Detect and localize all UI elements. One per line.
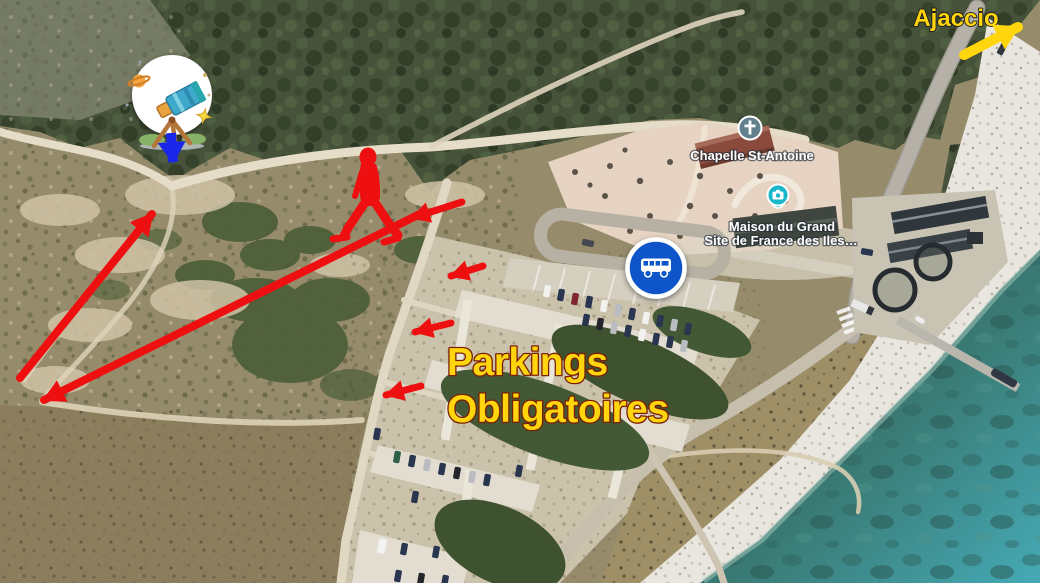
aerial-photo: Chapelle St-Antoine Maison du Grand Site… — [0, 0, 1040, 583]
parking-label-line1: Parkings — [447, 341, 608, 384]
maison-label-line2: Site de France des Iles… — [704, 233, 857, 248]
chapel-label: Chapelle St-Antoine — [690, 148, 814, 163]
aquaculture-tank — [916, 245, 950, 279]
parking-label-line2: Obligatoires — [447, 388, 669, 431]
viewpoint-down-arrow — [171, 133, 173, 162]
aquaculture-tank — [875, 270, 915, 310]
bus-sign-icon — [628, 240, 685, 297]
cross-icon — [749, 121, 752, 135]
maison-label-line1: Maison du Grand — [729, 219, 835, 234]
ajaccio-label: Ajaccio — [913, 5, 998, 32]
annotated-aerial-map: Chapelle St-Antoine Maison du Grand Site… — [0, 0, 1040, 583]
